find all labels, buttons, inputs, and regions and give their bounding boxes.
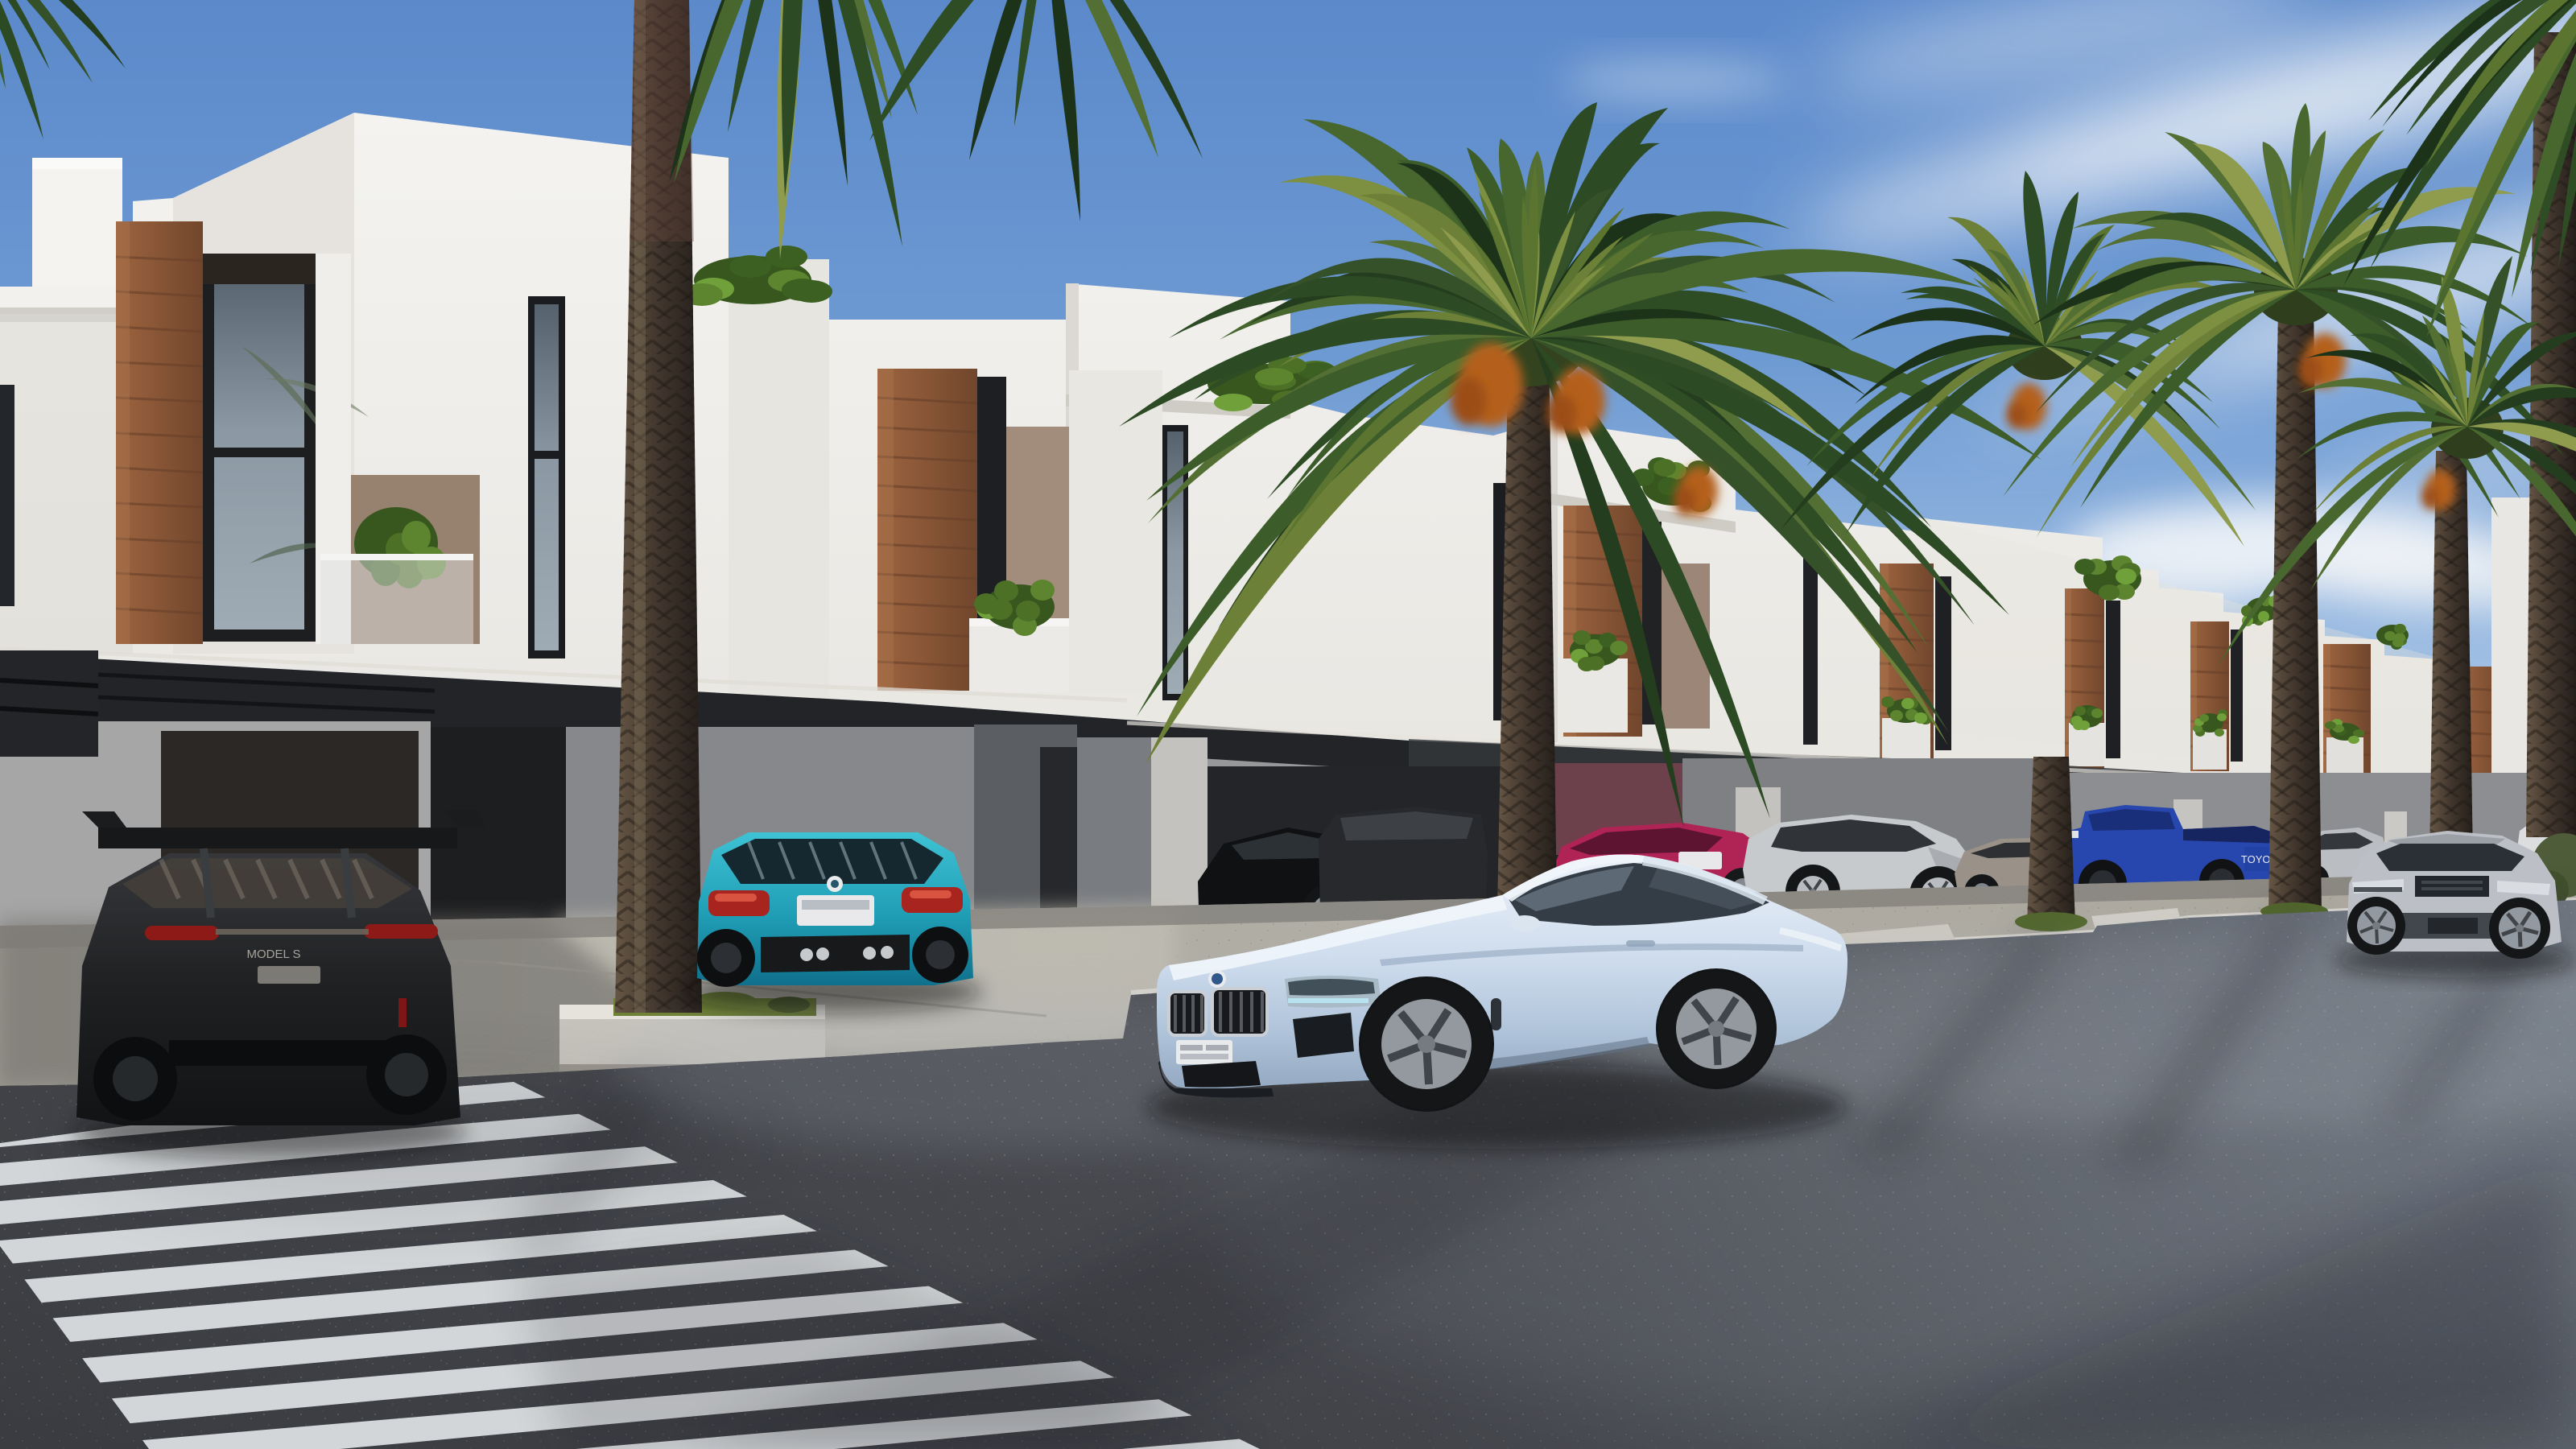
svg-text:MODEL S: MODEL S <box>247 947 301 961</box>
